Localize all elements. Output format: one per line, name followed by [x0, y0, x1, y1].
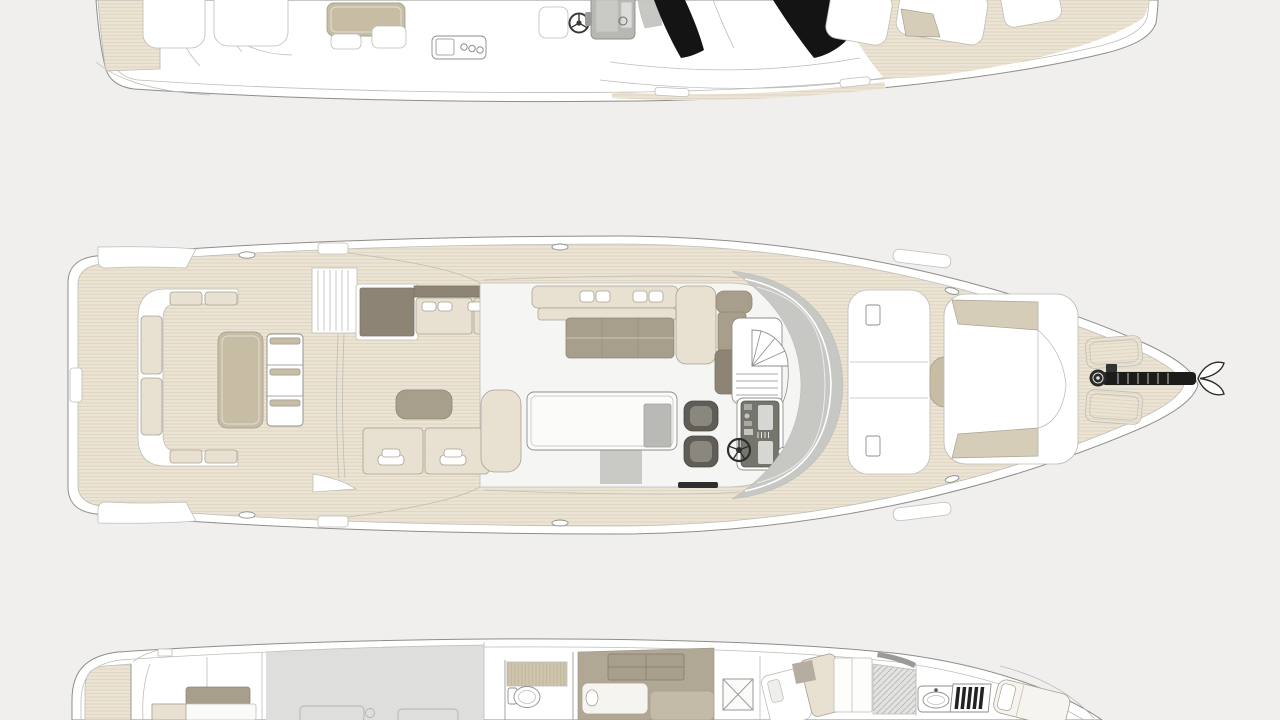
cleat-icon [552, 244, 568, 250]
vip-blanket-wedge [792, 660, 816, 684]
walkway-hatch [318, 516, 348, 527]
throw-pillow [649, 291, 663, 302]
outdoor-galley [360, 288, 414, 336]
dinette-table [527, 392, 677, 450]
sink-icon [923, 692, 949, 708]
twin-bed [650, 691, 714, 720]
anchor-icon [1198, 362, 1224, 395]
sofa-cushion [205, 292, 237, 305]
bow-locker [1085, 335, 1143, 369]
lounge-seat [143, 0, 205, 48]
corner-bench [481, 390, 521, 472]
folding-chair-stack [267, 334, 303, 426]
cockpit-table [218, 332, 263, 428]
rug [600, 446, 642, 484]
foredeck-backrest-panel [848, 290, 930, 474]
sofa-cushion [141, 316, 162, 374]
sofa-cushion [205, 450, 237, 463]
helm-seat [684, 401, 718, 431]
foredeck-sunpad [944, 294, 1078, 464]
bow-cabin-bed [992, 678, 1072, 720]
salon-sofa-chaise [676, 286, 716, 364]
lounge-seat [214, 0, 288, 46]
deck-step [158, 649, 172, 656]
walkway-hatch [892, 249, 951, 269]
flybridge-deck-plan [96, 0, 1158, 102]
windlass-gear-icon [1090, 370, 1107, 387]
deck-plans-svg [0, 0, 1280, 720]
bed-pillow [586, 690, 598, 706]
cleat-icon [552, 520, 568, 526]
helm-console [585, 0, 635, 39]
aft-teak-deck [85, 664, 131, 720]
companionway-steps-icon [950, 684, 991, 712]
mirror-hatched-panel [873, 664, 916, 714]
transom-platform [98, 247, 196, 268]
engine-room [266, 645, 484, 720]
door-sill [678, 482, 718, 488]
bed-headboard [186, 687, 250, 705]
coffee-table [566, 318, 674, 358]
ottoman [396, 390, 452, 419]
shower-floor [507, 662, 567, 686]
cleat-icon [239, 512, 255, 518]
x-hatch-icon [723, 679, 753, 710]
sofa-cushion [170, 450, 202, 463]
throw-pillow [596, 291, 610, 302]
flybridge-stairs [312, 268, 357, 333]
throw-pillow [438, 302, 452, 311]
throw-pillow [633, 291, 647, 302]
helm-seat [684, 436, 718, 467]
walkway-hatch [318, 243, 348, 254]
main-deck-plan [68, 236, 1224, 534]
sofa-cushion [170, 292, 202, 305]
walkway-hatch [892, 502, 951, 522]
walkway-hatch [655, 87, 689, 97]
throw-pillow [422, 302, 436, 311]
helm-seat [539, 7, 568, 38]
transom-platform [98, 502, 196, 523]
toilet-icon [508, 687, 540, 708]
bow-locker [1085, 389, 1143, 425]
table-seat [372, 26, 406, 48]
throw-pillow [580, 291, 594, 302]
vip-wardrobe [834, 658, 872, 712]
spiral-staircase [732, 318, 788, 404]
table-seat [331, 34, 361, 49]
lower-deck-plan [72, 639, 1102, 720]
yacht-deck-plans-canvas [0, 0, 1280, 720]
swim-ladder-recess [70, 368, 82, 402]
sofa-cushion [141, 378, 162, 435]
wardrobe [608, 654, 684, 680]
bed-pillow-area [152, 704, 186, 720]
cleat-icon [239, 252, 255, 258]
wet-bar [432, 36, 486, 59]
